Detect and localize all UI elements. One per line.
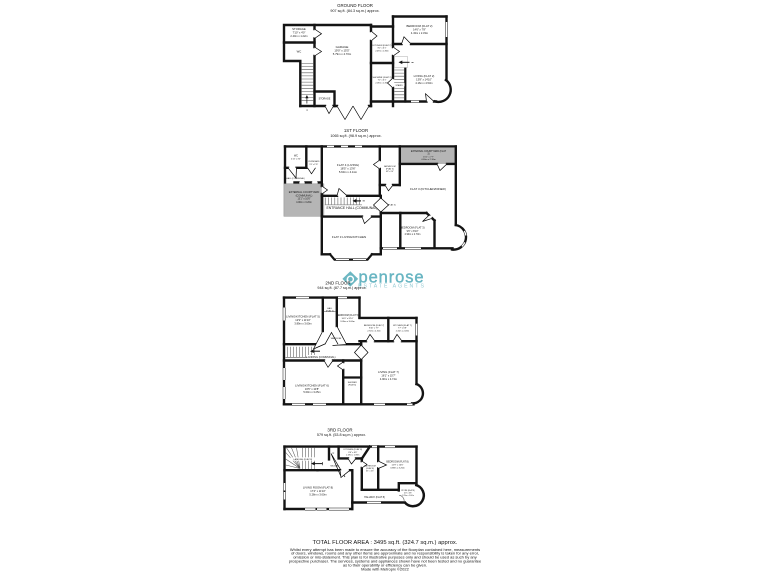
svg-text:15'1" x 7'7": 15'1" x 7'7" bbox=[423, 156, 434, 158]
svg-text:WC: WC bbox=[297, 50, 302, 54]
svg-text:KITCHEN (FLAT 2): KITCHEN (FLAT 2) bbox=[373, 44, 392, 47]
svg-text:up: up bbox=[306, 110, 308, 112]
svg-text:12'9" x 11'10": 12'9" x 11'10" bbox=[295, 318, 311, 322]
svg-text:LIVING/KITCHEN (FLAT 6): LIVING/KITCHEN (FLAT 6) bbox=[295, 383, 329, 387]
svg-text:16'5" x 10'8": 16'5" x 10'8" bbox=[305, 387, 319, 391]
svg-text:8'2" x 6'1": 8'2" x 6'1" bbox=[378, 48, 387, 50]
svg-text:6'8" x 5'6": 6'8" x 5'6" bbox=[386, 171, 394, 173]
svg-text:14'6" x 7'8": 14'6" x 7'8" bbox=[413, 27, 426, 31]
svg-text:BEDROOM (FLAT 2): BEDROOM (FLAT 2) bbox=[406, 24, 432, 28]
svg-text:17'4" x 11'10": 17'4" x 11'10" bbox=[310, 489, 326, 493]
svg-text:LIVING/KITCHEN (FLAT 5): LIVING/KITCHEN (FLAT 5) bbox=[286, 315, 320, 319]
svg-text:(FLAT 5): (FLAT 5) bbox=[326, 310, 334, 313]
svg-text:BATHROOM: BATHROOM bbox=[364, 465, 376, 468]
svg-text:1065 sq.ft. (98.9 sq.m.) appro: 1065 sq.ft. (98.9 sq.m.) approx. bbox=[330, 134, 381, 138]
svg-text:4.00m x 3.20m: 4.00m x 3.20m bbox=[296, 201, 312, 204]
svg-text:BATHROOM: BATHROOM bbox=[384, 165, 396, 168]
svg-text:BEDROOM (FLAT 7): BEDROOM (FLAT 7) bbox=[364, 324, 385, 327]
svg-text:5.00m x 3.25m: 5.00m x 3.25m bbox=[303, 390, 320, 394]
svg-text:HALL (COMMUNAL): HALL (COMMUNAL) bbox=[286, 177, 305, 180]
svg-text:STORAGE: STORAGE bbox=[319, 98, 331, 101]
svg-text:STAIRS: STAIRS bbox=[395, 84, 403, 87]
svg-text:4.16m x 4.53m: 4.16m x 4.53m bbox=[415, 81, 432, 85]
svg-text:4'11" x 3'0": 4'11" x 3'0" bbox=[291, 158, 301, 160]
svg-text:(FLAT 6): (FLAT 6) bbox=[348, 384, 356, 387]
svg-text:2.31m x 2.03m: 2.31m x 2.03m bbox=[396, 330, 410, 332]
svg-text:2ND FLOOR: 2ND FLOOR bbox=[325, 280, 350, 285]
svg-text:7'2" x 6'1": 7'2" x 6'1" bbox=[378, 80, 387, 82]
svg-text:944 sq.ft. (87.7 sq.m.) approx: 944 sq.ft. (87.7 sq.m.) approx. bbox=[317, 286, 366, 290]
svg-text:10'0" x 9'10": 10'0" x 9'10" bbox=[342, 318, 354, 320]
svg-text:4.43m x 2.33m: 4.43m x 2.33m bbox=[411, 31, 428, 35]
svg-text:5.28m x 3.60m: 5.28m x 3.60m bbox=[309, 492, 326, 496]
svg-text:8'6" x 6'6": 8'6" x 6'6" bbox=[348, 452, 357, 454]
svg-text:3RD FLOOR: 3RD FLOOR bbox=[327, 427, 352, 432]
svg-text:SHOWER (FLAT 2): SHOWER (FLAT 2) bbox=[373, 76, 392, 79]
svg-text:12'9" x 10'6": 12'9" x 10'6" bbox=[392, 464, 404, 466]
svg-text:(FLAT 3): (FLAT 3) bbox=[386, 167, 394, 170]
svg-text:KITCHEN (FLAT 8): KITCHEN (FLAT 8) bbox=[343, 448, 362, 451]
svg-text:HALLWAY: HALLWAY bbox=[330, 464, 339, 467]
svg-text:4.90m x 4.74m: 4.90m x 4.74m bbox=[380, 377, 397, 381]
svg-text:3.89m x 3.60m: 3.89m x 3.60m bbox=[294, 321, 311, 325]
svg-text:BEDROOM (FLAT 5): BEDROOM (FLAT 5) bbox=[336, 314, 358, 317]
svg-text:1.22m x 1.07m: 1.22m x 1.07m bbox=[402, 495, 414, 497]
svg-text:TOTAL FLOOR AREA : 3495 sq.ft.: TOTAL FLOOR AREA : 3495 sq.ft. (324.7 sq… bbox=[313, 540, 458, 546]
svg-text:4.60m x 2.30m: 4.60m x 2.30m bbox=[421, 159, 436, 161]
svg-text:WARDROBE: WARDROBE bbox=[331, 337, 342, 340]
svg-text:GROUND FLOOR: GROUND FLOOR bbox=[337, 3, 373, 8]
svg-text:2.90m x 2.70m: 2.90m x 2.70m bbox=[405, 233, 421, 236]
svg-text:7'7" x 6'8": 7'7" x 6'8" bbox=[398, 328, 407, 330]
svg-text:WC: WC bbox=[294, 155, 298, 158]
svg-text:907 sq.ft. (84.3 sq.m.) approx: 907 sq.ft. (84.3 sq.m.) approx. bbox=[330, 9, 379, 13]
svg-text:HALL: HALL bbox=[327, 307, 333, 310]
svg-text:7'10" x 4'0": 7'10" x 4'0" bbox=[293, 30, 306, 34]
svg-text:3): 3) bbox=[427, 153, 429, 156]
svg-text:LIVING ROOM (FLAT 8): LIVING ROOM (FLAT 8) bbox=[303, 486, 333, 490]
svg-text:2.49m x 1.85m: 2.49m x 1.85m bbox=[375, 50, 389, 52]
svg-text:2.40m x 1.22m: 2.40m x 1.22m bbox=[290, 34, 307, 38]
svg-text:2.18m x 1.85m: 2.18m x 1.85m bbox=[375, 82, 389, 84]
svg-text:579 sq.ft. (53.8 sq.m.) approx: 579 sq.ft. (53.8 sq.m.) approx. bbox=[317, 433, 366, 437]
svg-text:LIVING (FLAT 2): LIVING (FLAT 2) bbox=[414, 74, 435, 78]
svg-text:5.79m x 4.70m: 5.79m x 4.70m bbox=[333, 52, 352, 56]
svg-text:FLAT 3 (KITCHEN/DINER): FLAT 3 (KITCHEN/DINER) bbox=[410, 187, 446, 191]
svg-text:CUPBOARD: CUPBOARD bbox=[308, 160, 320, 163]
svg-text:2.70m x 2.31m: 2.70m x 2.31m bbox=[367, 330, 381, 332]
svg-text:KITCHEN (FLAT 7): KITCHEN (FLAT 7) bbox=[393, 324, 412, 327]
svg-text:LANDING (COMMUNAL): LANDING (COMMUNAL) bbox=[306, 355, 335, 359]
svg-text:ESTATE AGENTS: ESTATE AGENTS bbox=[358, 284, 426, 290]
svg-text:FLAT 3 LIVING/KITCHEN: FLAT 3 LIVING/KITCHEN bbox=[332, 235, 366, 239]
svg-text:13'8" x 14'10": 13'8" x 14'10" bbox=[416, 77, 432, 81]
svg-text:LIVING (FLAT 7): LIVING (FLAT 7) bbox=[378, 370, 399, 374]
svg-text:Made with Metropix ©2022: Made with Metropix ©2022 bbox=[361, 566, 409, 571]
svg-text:8'10" x 7'7": 8'10" x 7'7" bbox=[369, 328, 379, 330]
svg-text:HALLWAY (FLAT 8): HALLWAY (FLAT 8) bbox=[364, 496, 385, 499]
svg-text:5'9" x 2'11": 5'9" x 2'11" bbox=[309, 164, 318, 166]
svg-text:LANDING (FLAT 8): LANDING (FLAT 8) bbox=[293, 458, 312, 461]
svg-text:2.59m x 1.98m: 2.59m x 1.98m bbox=[346, 455, 360, 457]
svg-text:BEDROOM (FLAT 8): BEDROOM (FLAT 8) bbox=[386, 460, 408, 463]
svg-text:6'1" x 5'5": 6'1" x 5'5" bbox=[366, 471, 374, 473]
svg-text:16'1" x 15'7": 16'1" x 15'7" bbox=[381, 374, 395, 378]
svg-text:1ST FLOOR: 1ST FLOOR bbox=[344, 128, 368, 133]
svg-text:STORAGE: STORAGE bbox=[292, 27, 306, 31]
svg-text:5.60m x 4.11m: 5.60m x 4.11m bbox=[339, 170, 358, 174]
svg-text:ENTRANCE HALL (COMMUNAL): ENTRANCE HALL (COMMUNAL) bbox=[327, 206, 378, 210]
svg-text:3.89m x 3.20m: 3.89m x 3.20m bbox=[390, 467, 405, 469]
svg-text:3.05m x 3.00m: 3.05m x 3.00m bbox=[340, 321, 355, 323]
